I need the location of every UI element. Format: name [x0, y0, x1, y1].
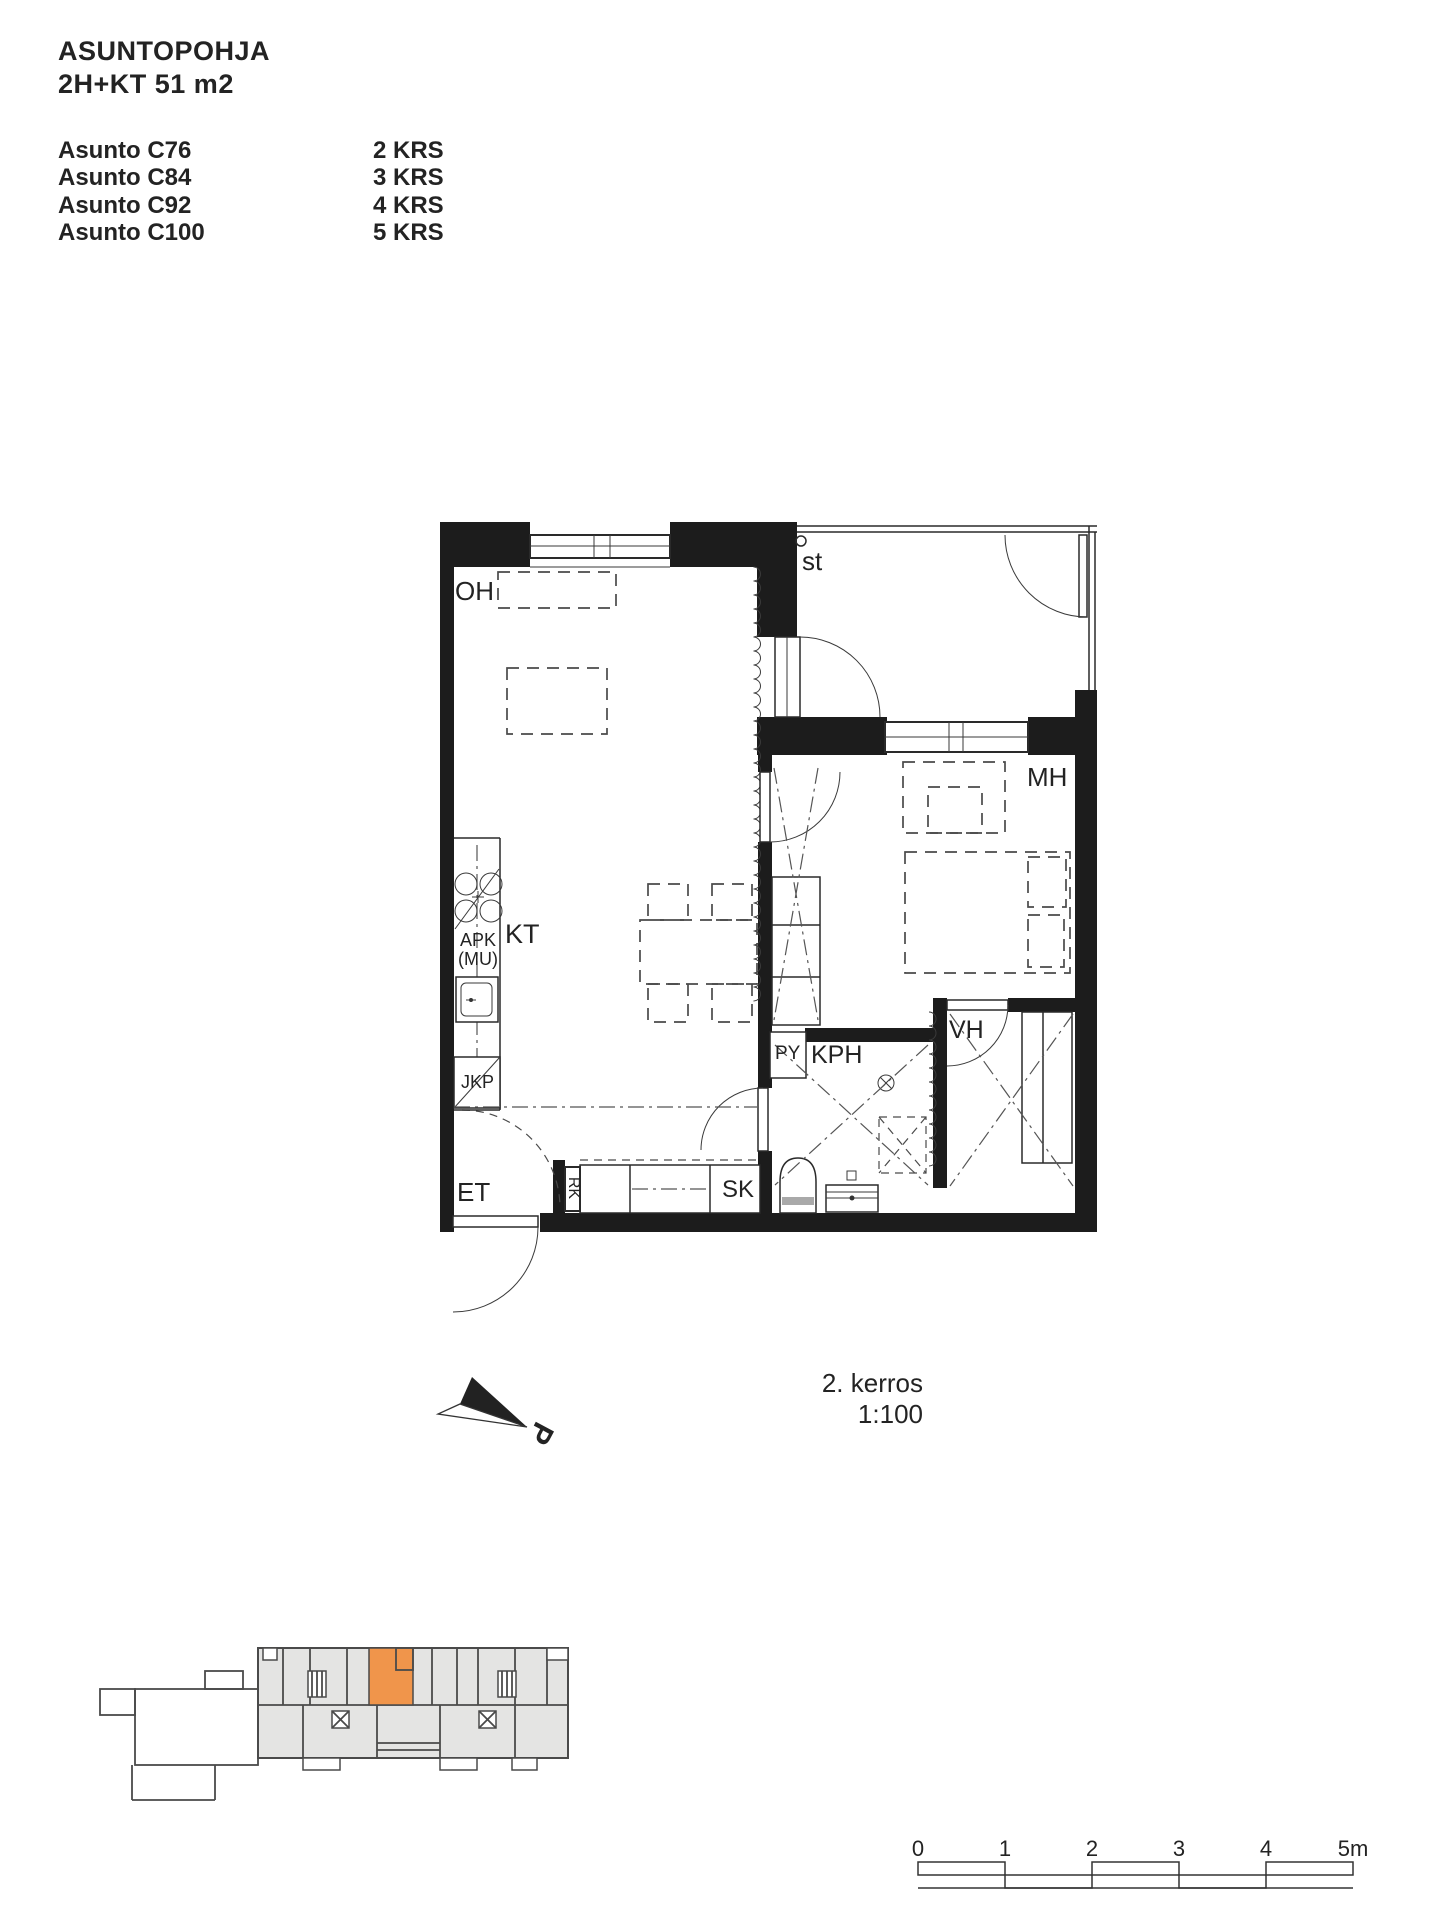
- room-label-vh: VH: [949, 1018, 984, 1043]
- unit-row-floor: 3 KRS: [373, 166, 444, 190]
- kph-door: [701, 1088, 768, 1151]
- scale-tick: 2: [1062, 1838, 1122, 1860]
- scale-tick: 4: [1236, 1838, 1296, 1860]
- mh-window: [885, 722, 1028, 752]
- appliance-label-apk: APK: [452, 931, 504, 949]
- unit-row-name: Asunto C100: [58, 221, 205, 245]
- unit-row-floor: 2 KRS: [373, 139, 444, 163]
- washbasin: [826, 1171, 878, 1212]
- stove: [455, 869, 502, 929]
- appliance-label-mu: (MU): [450, 950, 506, 968]
- room-label-oh: OH: [455, 578, 494, 604]
- toilet: [780, 1158, 816, 1213]
- scale-tick: 3: [1149, 1838, 1209, 1860]
- room-label-kt: KT: [505, 921, 540, 948]
- closet-label-sk: SK: [722, 1178, 754, 1202]
- mh-furniture: [903, 762, 1070, 973]
- oh-window: [530, 535, 670, 567]
- unit-row-floor: 5 KRS: [373, 221, 444, 245]
- scale-annotation: 1:100: [723, 1401, 923, 1427]
- scale-tick: 5m: [1323, 1838, 1383, 1860]
- sink: [456, 977, 498, 1022]
- highlighted-unit: [369, 1648, 413, 1705]
- floor-plan-svg: [0, 0, 1440, 1924]
- hall-closets: [772, 768, 820, 1025]
- appliance-label-jkp: JKP: [461, 1073, 494, 1091]
- apartment-type: 2H+KT 51 m2: [58, 71, 234, 98]
- balcony-railing: [797, 526, 1097, 690]
- unit-row-name: Asunto C84: [58, 166, 191, 190]
- room-label-st: st: [802, 548, 822, 574]
- panel-label-rk: RK: [565, 1168, 581, 1208]
- unit-row-name: Asunto C92: [58, 194, 191, 218]
- room-label-mh: MH: [1027, 764, 1067, 790]
- oh-furniture: [498, 572, 757, 1022]
- unit-row-name: Asunto C76: [58, 139, 191, 163]
- building-overview: [100, 1648, 568, 1800]
- scale-tick: 1: [975, 1838, 1035, 1860]
- scale-tick: 0: [888, 1838, 948, 1860]
- st-marker-circle: [796, 536, 806, 546]
- floor-annotation: 2. kerros: [723, 1370, 923, 1396]
- room-label-kph: KPH: [811, 1043, 862, 1068]
- page-title: ASUNTOPOHJA: [58, 38, 270, 65]
- room-label-et: ET: [457, 1179, 490, 1205]
- north-arrow-icon: [438, 1377, 527, 1427]
- entrance-door: [453, 1216, 538, 1312]
- balcony-door: [775, 637, 880, 717]
- floor-plan-page: ASUNTOPOHJA 2H+KT 51 m2 Asunto C76 2 KRS…: [0, 0, 1440, 1924]
- balcony-side-door: [1005, 535, 1087, 617]
- unit-row-floor: 4 KRS: [373, 194, 444, 218]
- annex-outline: [100, 1671, 258, 1800]
- mh-door: [760, 772, 840, 842]
- scale-bar: [918, 1862, 1353, 1888]
- room-label-py: PY: [775, 1044, 800, 1063]
